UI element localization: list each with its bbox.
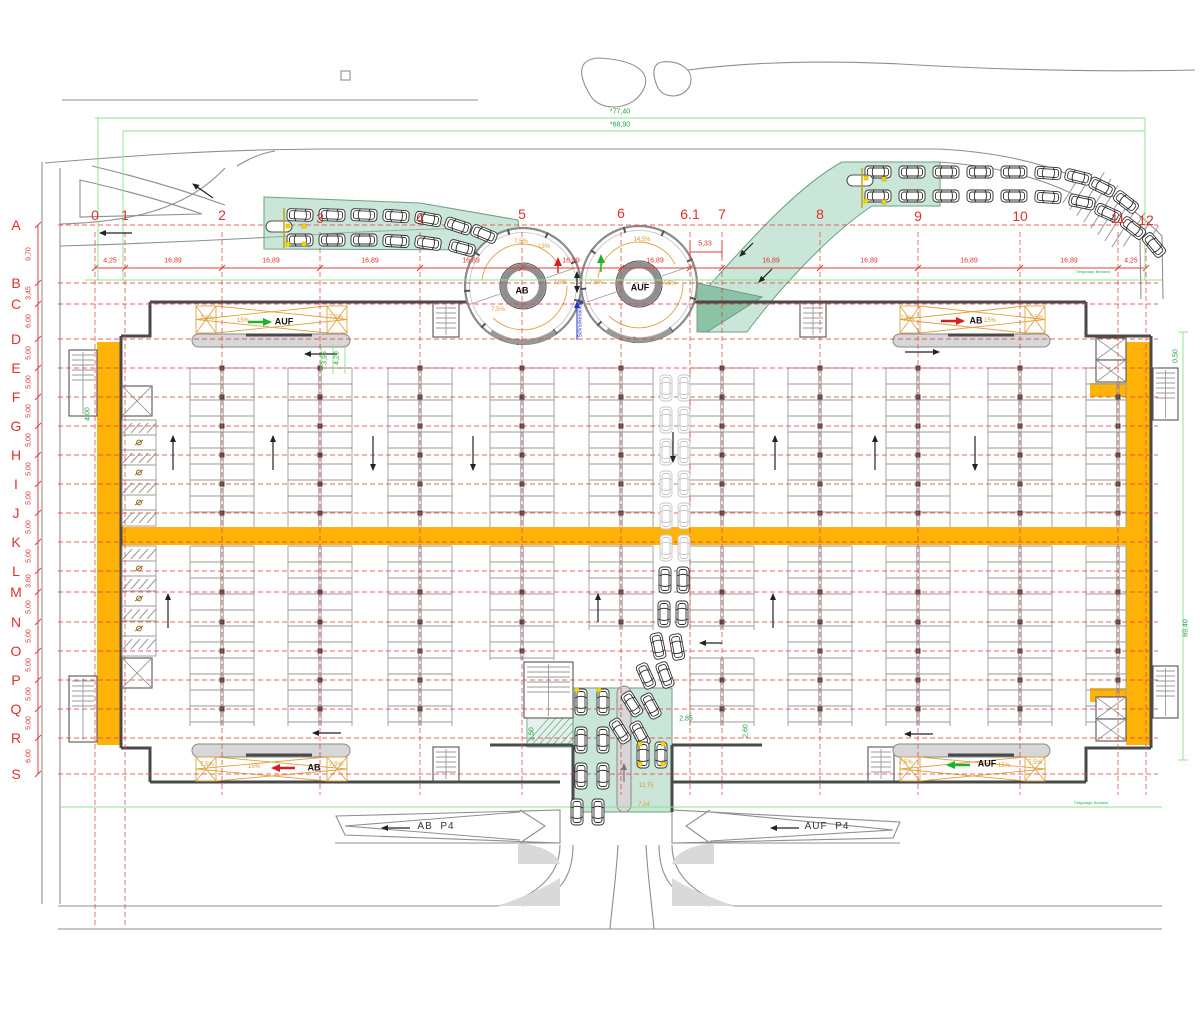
dimension-label: 5,00 — [26, 520, 33, 534]
grid-row-label: E — [11, 361, 20, 375]
grid-row-label: Q — [11, 702, 22, 716]
dimension-label: 16,89 — [646, 258, 664, 265]
dimension-label: 2,50 — [529, 727, 536, 741]
road-label: AUF P4 — [805, 822, 850, 832]
grid-column-label: 4 — [416, 211, 424, 225]
grid-column-label: 6 — [617, 206, 625, 220]
dimension-label: 16,89 — [860, 258, 878, 265]
ramp-grade-label: 7,5% — [491, 307, 505, 313]
grid-row-label: D — [11, 332, 21, 346]
dimension-label: 5,00 — [26, 346, 33, 360]
dimension-label: 4,25 — [1124, 258, 1138, 265]
dimension-label: 2,60 — [743, 724, 750, 738]
spiral-ramp-label: AUF — [631, 284, 650, 293]
grid-column-label: 11 — [1111, 211, 1126, 225]
dimension-label: 3,95 — [322, 351, 329, 365]
grid-row-label: A — [11, 218, 20, 232]
ramp-grade-label: 7,5% — [329, 315, 343, 321]
ramp-grade-label: 7,5% — [1028, 760, 1042, 766]
grid-row-label: N — [11, 615, 21, 629]
grid-row-label: J — [13, 506, 20, 520]
grid-row-label: S — [11, 767, 20, 781]
grid-column-label: 9 — [914, 209, 922, 223]
grid-column-label: 8 — [816, 207, 824, 221]
floor-plan: 01234566.1789101112ABCDEFGHIJKLMNOPQRS4,… — [0, 0, 1200, 1029]
dimension-label: 2,85 — [679, 716, 693, 723]
ramp-direction-label: AB — [308, 764, 321, 773]
dimension-label: 4,00 — [85, 407, 92, 421]
ramp-grade-label: 7,5% — [200, 762, 214, 768]
grid-column-label: 1 — [121, 208, 129, 222]
grid-column-label: 3 — [316, 211, 324, 225]
grid-row-label: R — [11, 731, 21, 745]
grid-row-label: K — [11, 535, 20, 549]
road-label: AB P4 — [417, 822, 454, 832]
grid-row-label: L — [12, 564, 20, 578]
dimension-label: 12,75 — [638, 783, 653, 789]
dimension-label: 5,00 — [26, 375, 33, 389]
dimension-label: 9,70 — [26, 247, 33, 261]
overall-dimension-label: *77,40 — [610, 109, 630, 116]
dimension-label: 5,33 — [698, 241, 712, 248]
ramp-grade-label: 7,5% — [899, 760, 913, 766]
ramp-grade-label: 7,5% — [553, 280, 567, 286]
ramp-direction-label: AUF — [978, 760, 997, 769]
ramp-grade-label: 14,5% — [633, 237, 650, 243]
dimension-label: 5,00 — [26, 491, 33, 505]
grid-row-label: O — [11, 644, 22, 658]
dimension-label: 6,00 — [26, 749, 33, 763]
ramp-grade-label: 15% — [248, 764, 260, 770]
dimension-label: 4,25 — [103, 258, 117, 265]
ramp-direction-label: AB — [970, 317, 983, 326]
spiral-ramp-label: AB — [516, 287, 529, 296]
grid-column-label: 6.1 — [680, 207, 699, 221]
ramp-grade-label: 7,5% — [329, 762, 343, 768]
ramp-grade-label: 15% — [237, 318, 249, 324]
ramp-grade-label: 7,5% — [200, 316, 214, 322]
dimension-label: 16,89 — [562, 258, 580, 265]
annotation: Tiefgarage Bestand — [1074, 801, 1109, 805]
grid-column-label: 0 — [91, 208, 99, 222]
grid-column-label: 10 — [1012, 209, 1028, 223]
dimension-label: 5,00 — [26, 629, 33, 643]
overall-dimension-label: 69,40 — [1183, 619, 1190, 637]
dimension-label: 16,89 — [1060, 258, 1078, 265]
annotation: Schrankenanlage — [579, 299, 584, 338]
ramp-grade-label: 7,5% — [589, 280, 603, 286]
dimension-label: 5,00 — [26, 658, 33, 672]
grid-row-label: I — [14, 477, 18, 491]
grid-row-label: H — [11, 448, 21, 462]
dimension-label: 16,89 — [164, 258, 182, 265]
ramp-grade-label: 14,5% — [659, 281, 676, 287]
annotation: Tiefgarage Bestand — [1076, 270, 1111, 274]
grid-row-label: G — [11, 419, 22, 433]
dimension-label: 5,00 — [26, 404, 33, 418]
grid-row-label: P — [11, 673, 20, 687]
dimension-label: 5,00 — [26, 462, 33, 476]
dimension-label: 3,60 — [26, 574, 33, 588]
ramp-grade-label: 7,5% — [514, 239, 528, 245]
dimension-label: 16,89 — [762, 258, 780, 265]
dimension-label: 0,50 — [1173, 349, 1180, 363]
dimension-label: 6,00 — [26, 314, 33, 328]
dimension-label: 3,45 — [26, 286, 33, 300]
ramp-grade-label: 15% — [984, 318, 996, 324]
grid-row-label: M — [10, 585, 22, 599]
dimension-label: 5,00 — [26, 549, 33, 563]
dimension-label: 5,00 — [26, 600, 33, 614]
grid-column-label: 7 — [718, 207, 726, 221]
grid-column-label: 2 — [218, 208, 226, 222]
ramp-grade-label: 7,5% — [1029, 315, 1043, 321]
dimension-label: 16,89 — [462, 258, 480, 265]
plan-labels: 01234566.1789101112ABCDEFGHIJKLMNOPQRS4,… — [0, 0, 1200, 1029]
ramp-grade-label: 7,5% — [900, 316, 914, 322]
grid-column-label: 12 — [1138, 213, 1154, 227]
grid-row-label: F — [12, 390, 21, 404]
ramp-grade-label: 15% — [998, 763, 1010, 769]
dimension-label: 16,89 — [262, 258, 280, 265]
grid-row-label: C — [11, 297, 21, 311]
dimension-label: 5,00 — [26, 433, 33, 447]
overall-dimension-label: *68,90 — [610, 122, 630, 129]
ramp-direction-label: AUF — [275, 318, 294, 327]
ramp-grade-label: 13% — [538, 244, 550, 250]
dimension-label: 5,00 — [26, 716, 33, 730]
dimension-label: 16,89 — [361, 258, 379, 265]
dimension-label: 7,04 — [638, 802, 650, 808]
dimension-label: 4,20 — [334, 351, 341, 365]
grid-column-label: 5 — [518, 207, 526, 221]
dimension-label: 5,00 — [26, 687, 33, 701]
grid-row-label: B — [11, 276, 20, 290]
dimension-label: 16,89 — [960, 258, 978, 265]
